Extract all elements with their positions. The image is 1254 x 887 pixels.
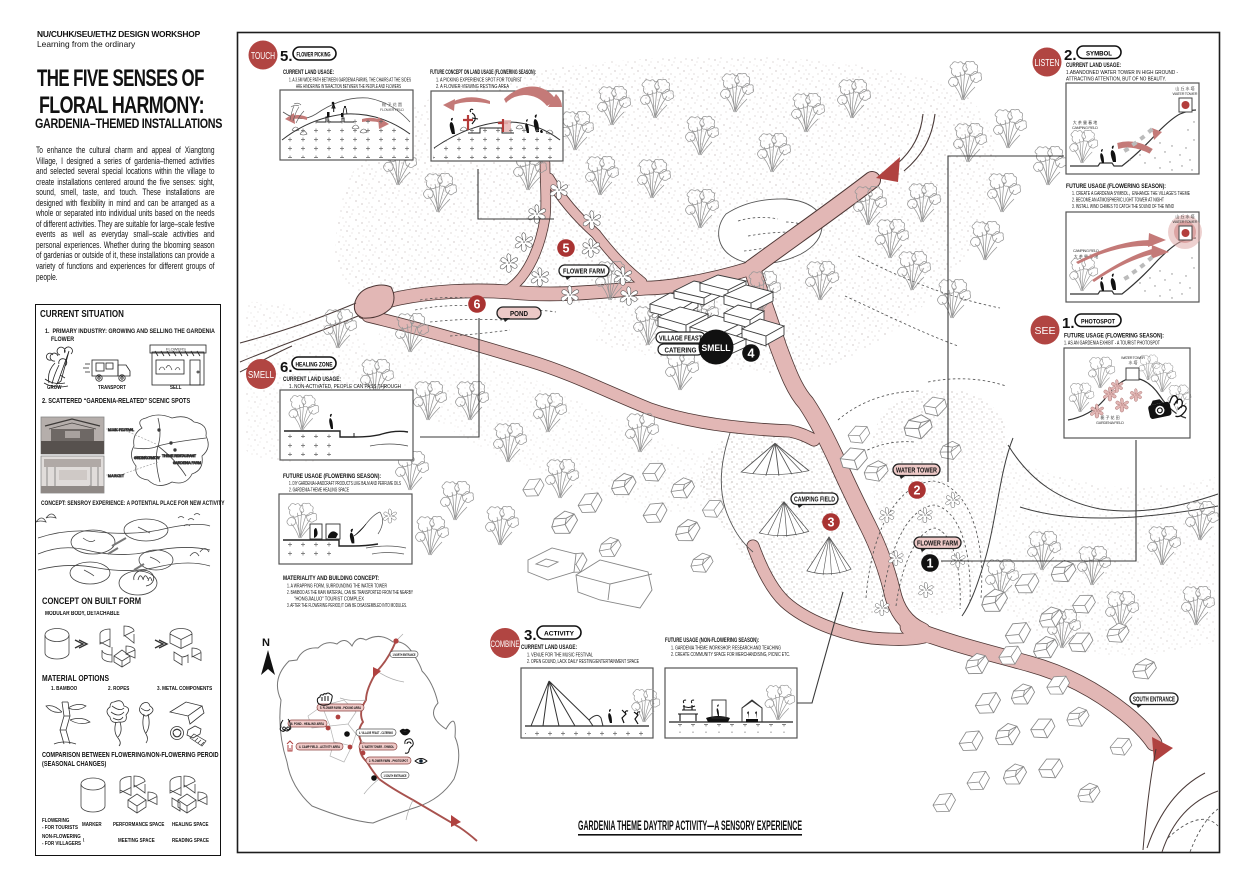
svg-text:HEALING ZONE: HEALING ZONE — [296, 362, 333, 369]
svg-text:N: N — [262, 637, 270, 649]
svg-text:"HONGJIALUO" TOURIST COMPLEX: "HONGJIALUO" TOURIST COMPLEX — [294, 597, 364, 603]
svg-text:TOUCH: TOUCH — [251, 50, 275, 62]
svg-text:4. CAMP FIELD - ACTIVITY AREA: 4. CAMP FIELD - ACTIVITY AREA — [299, 745, 340, 749]
svg-text:FLOWER FARM: FLOWER FARM — [563, 269, 605, 276]
svg-text:3: 3 — [828, 516, 835, 530]
svg-text:FLOWER FARM: FLOWER FARM — [917, 541, 958, 548]
svg-text:CATERING: CATERING — [665, 348, 697, 355]
svg-text:CURRENT LAND USAGE:: CURRENT LAND USAGE: — [521, 644, 577, 651]
svg-text:CAMPING FIELD: CAMPING FIELD — [794, 497, 835, 504]
svg-text:3. WATER TOWER - SYMBOL: 3. WATER TOWER - SYMBOL — [362, 745, 394, 749]
svg-text:1. GARDENIA THEME WORKSHOP,: 1. GARDENIA THEME WORKSHOP, RESEARCH AND… — [671, 646, 781, 652]
svg-text:1 SOUTH ENTRANCE: 1 SOUTH ENTRANCE — [384, 774, 408, 778]
svg-text:FLOWER PICKING: FLOWER PICKING — [297, 52, 331, 59]
svg-text:FUTURE USAGE (FLOWERING SEASON: FUTURE USAGE (FLOWERING SEASON): — [1066, 183, 1166, 190]
svg-text:FUTURE CONCEPT ON LAND USAGE (: FUTURE CONCEPT ON LAND USAGE (FLOWERING … — [430, 69, 536, 76]
svg-text:SYMBOL: SYMBOL — [1086, 51, 1112, 58]
svg-text:GARDENIA THEME DAYTRIP ACTIVIT: GARDENIA THEME DAYTRIP ACTIVITY—A SENSOR… — [578, 818, 802, 833]
svg-text:3. INSTALL WIND CHIMES TO CA: 3. INSTALL WIND CHIMES TO CATCH THE SOUN… — [1072, 204, 1174, 210]
svg-text:4. VILLAGE FEAST - CATERING: 4. VILLAGE FEAST - CATERING — [359, 731, 393, 735]
svg-text:WATER TOWER: WATER TOWER — [1173, 220, 1198, 224]
svg-text:1. VENUE FOR THE MUSIC FESTI: 1. VENUE FOR THE MUSIC FESTIVAL — [527, 653, 593, 659]
svg-text:CURRENT LAND USAGE:: CURRENT LAND USAGE: — [283, 376, 341, 383]
svg-text:CAMPING FIELD: CAMPING FIELD — [1073, 249, 1099, 253]
svg-text:POND: POND — [510, 311, 528, 318]
svg-text:CURRENT LAND USAGE:: CURRENT LAND USAGE: — [1066, 62, 1121, 69]
svg-text:FLOWER FIELD: FLOWER FIELD — [380, 108, 404, 112]
svg-text:SOUTH ENTRANCE: SOUTH ENTRANCE — [1133, 697, 1175, 704]
svg-text:5. FLOWER FARM - PICKING AREA: 5. FLOWER FARM - PICKING AREA — [320, 706, 361, 710]
svg-text:CURRENT LAND USAGE:: CURRENT LAND USAGE: — [283, 69, 334, 76]
svg-text:SMELL: SMELL — [702, 343, 731, 354]
svg-text:2. OPEN GOUND, LACK DAILY RE: 2. OPEN GOUND, LACK DAILY RESTING/ENTERT… — [527, 659, 639, 665]
svg-text:3.: 3. — [524, 627, 537, 644]
svg-text:1. CREATE A GARDENIA SYMBOL，: 1. CREATE A GARDENIA SYMBOL，ENHANCE THE … — [1072, 191, 1190, 197]
svg-text:LISTEN: LISTEN — [1035, 58, 1060, 69]
svg-text:1 NORTH ENTRANCE: 1 NORTH ENTRANCE — [393, 653, 417, 657]
svg-text:2. A FLOWER-VIEWING RESTING: 2. A FLOWER-VIEWING RESTING AREA — [436, 84, 509, 90]
svg-text:1. A WRAPPING FORM, SURROUNDI: 1. A WRAPPING FORM, SURROUNDING THE WATE… — [287, 584, 387, 590]
svg-text:MATERIALITY AND BUILDING CONCE: MATERIALITY AND BUILDING CONCEPT: — [283, 575, 379, 582]
svg-text:山 丘 水 塔: 山 丘 水 塔 — [1175, 85, 1194, 91]
svg-text:6: 6 — [474, 298, 481, 312]
svg-text:PHOTOSPOT: PHOTOSPOT — [1081, 319, 1116, 326]
svg-text:6.: 6. — [280, 359, 293, 376]
svg-text:1. NON-ACTIVATED, PEOPLE CAN: 1. NON-ACTIVATED, PEOPLE CAN PASS THROUG… — [289, 384, 401, 390]
svg-text:WATER TOWER: WATER TOWER — [1173, 92, 1198, 96]
svg-text:4: 4 — [748, 347, 755, 361]
svg-text:2. BAMBOO AS THE MAIN MATERIA: 2. BAMBOO AS THE MAIN MATERIAL, CAN BE T… — [287, 590, 413, 596]
svg-text:VILLAGE FEAST: VILLAGE FEAST — [659, 336, 703, 343]
svg-text:1: 1 — [927, 557, 934, 571]
svg-text:1. DIY GARDENIA HANDCRAFT PRO: 1. DIY GARDENIA HANDCRAFT PRODUCTS LIKE … — [289, 481, 401, 487]
svg-text:FUTURE USAGE (FLOWERING SEASON: FUTURE USAGE (FLOWERING SEASON): — [283, 473, 381, 480]
svg-text:ACTIVITY: ACTIVITY — [544, 631, 574, 638]
svg-text:SMELL: SMELL — [248, 370, 274, 381]
svg-text:山 丘 水 塔: 山 丘 水 塔 — [1175, 213, 1194, 219]
svg-text:2. CREATE COMMUNITY SPACE FO: 2. CREATE COMMUNITY SPACE FOR MERCHANDIS… — [671, 652, 790, 658]
svg-text:5: 5 — [563, 242, 570, 256]
svg-text:GARDENIA FIELD: GARDENIA FIELD — [1096, 421, 1124, 425]
svg-text:1.: 1. — [1062, 315, 1075, 332]
svg-text:1. AS AN GARDENIA EXHIBIT - A: 1. AS AN GARDENIA EXHIBIT - A TOURIST PH… — [1064, 341, 1161, 347]
svg-text:1.ABANDONED WATER TOWER IN HIG: 1.ABANDONED WATER TOWER IN HIGH GROUND - — [1066, 70, 1178, 76]
svg-text:2. FLOWER FARM - PHOTOSPOT: 2. FLOWER FARM - PHOTOSPOT — [369, 759, 408, 763]
svg-text:FUTURE USAGE (NON-FLOWERING SE: FUTURE USAGE (NON-FLOWERING SEASON): — [665, 637, 759, 644]
svg-text:梔 子 花 田: 梔 子 花 田 — [1100, 414, 1119, 420]
svg-text:2. BECOME AN ATMOSPHERIC LIG: 2. BECOME AN ATMOSPHERIC LIGHT TOWER AT … — [1072, 198, 1165, 204]
svg-text:COMBINE: COMBINE — [491, 639, 520, 650]
svg-text:3. AFTER THE FLOWERING PERIOD: 3. AFTER THE FLOWERING PERIOD,IT CAN BE … — [287, 603, 407, 609]
svg-text:2. GARDENIA-THEME HEALING SPA: 2. GARDENIA-THEME HEALING SPACE — [289, 488, 349, 494]
svg-text:大 茶 營 春 地: 大 茶 營 春 地 — [1073, 119, 1097, 125]
svg-text:1. A 3.5M WIDE PATH BETWEEN G: 1. A 3.5M WIDE PATH BETWEEN GARDENIA FAR… — [289, 78, 411, 84]
svg-text:1. A PICKING EXPERIENCE SPOT: 1. A PICKING EXPERIENCE SPOT FOR TOURIST — [436, 78, 522, 84]
svg-text:2: 2 — [914, 484, 921, 498]
svg-text:水 塔: 水 塔 — [1128, 359, 1137, 365]
svg-text:ATTRACTING ATTENTION, BUT OF N: ATTRACTING ATTENTION, BUT OF NO BEAUTY. — [1066, 77, 1166, 83]
svg-text:6. POND - HEALING AREA: 6. POND - HEALING AREA — [291, 722, 324, 726]
svg-text:CAMPING FIELD: CAMPING FIELD — [1072, 126, 1098, 130]
svg-text:ARE HINDERING INTERACTION BETW: ARE HINDERING INTERACTION BETWEEN THE PE… — [296, 84, 401, 90]
svg-text:梔 子 花 園: 梔 子 花 園 — [382, 101, 402, 108]
svg-text:FUTURE USAGE (FLOWERING SEASON: FUTURE USAGE (FLOWERING SEASON): — [1064, 333, 1164, 340]
svg-text:5.: 5. — [280, 48, 293, 65]
svg-text:SEE: SEE — [1034, 325, 1055, 337]
svg-text:WATER TOWER: WATER TOWER — [896, 468, 937, 475]
